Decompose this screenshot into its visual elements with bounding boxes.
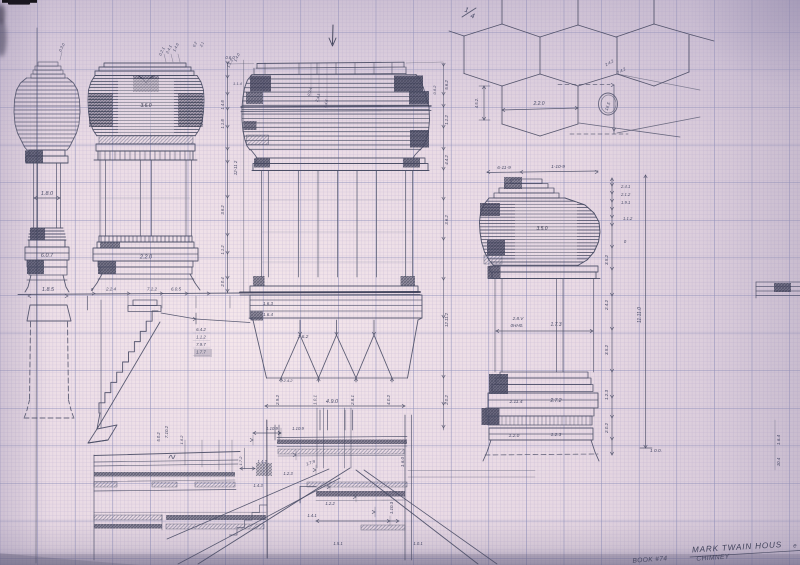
svg-text:5.6.2: 5.6.2 <box>444 80 449 90</box>
svg-text:1.2.2: 1.2.2 <box>325 501 335 506</box>
svg-text:5.0.2: 5.0.2 <box>156 432 161 442</box>
svg-text:1.10.9: 1.10.9 <box>292 426 304 431</box>
svg-text:4.4.2: 4.4.2 <box>444 155 449 165</box>
svg-text:4.9.0: 4.9.0 <box>326 399 339 405</box>
svg-text:1.4.3: 1.4.3 <box>253 483 263 488</box>
svg-text:12.11.2: 12.11.2 <box>444 312 449 327</box>
svg-text:7.2.2: 7.2.2 <box>147 287 158 292</box>
svg-text:1.10.9: 1.10.9 <box>266 426 278 431</box>
svg-text:2.0.4: 2.0.4 <box>220 277 225 288</box>
svg-text:2.8.V: 2.8.V <box>512 316 525 321</box>
svg-text:2.4.2: 2.4.2 <box>283 378 294 383</box>
svg-text:4.5.2.: 4.5.2. <box>474 98 479 108</box>
svg-text:1.2.0: 1.2.0 <box>509 433 520 439</box>
svg-text:1.6.2: 1.6.2 <box>179 435 184 445</box>
svg-text:1.6.4: 1.6.4 <box>263 312 274 317</box>
svg-text:6-11-9: 6-11-9 <box>497 165 511 171</box>
svg-text:0.6.2: 0.6.2 <box>432 85 437 95</box>
svg-text:2.4.1: 2.4.1 <box>620 184 630 189</box>
svg-text:1.5.1: 1.5.1 <box>333 541 342 546</box>
svg-text:7.9.7: 7.9.7 <box>196 342 206 347</box>
svg-text:3.6.2: 3.6.2 <box>444 215 449 225</box>
svg-text:1.1.2: 1.1.2 <box>220 245 225 255</box>
svg-text:6.0.5: 6.0.5 <box>171 287 182 292</box>
svg-text:1.7.2: 1.7.2 <box>238 456 243 466</box>
svg-text:1.0.1: 1.0.1 <box>413 541 422 546</box>
svg-text:6.0.7: 6.0.7 <box>41 253 54 259</box>
svg-text:3.6.0: 3.6.0 <box>140 103 151 109</box>
svg-text:2.2.0: 2.2.0 <box>532 101 544 107</box>
svg-text:1.0.1: 1.0.1 <box>313 395 318 406</box>
svg-text:1.6.0: 1.6.0 <box>400 456 405 467</box>
svg-text:1.6.3: 1.6.3 <box>263 301 274 306</box>
svg-text:2.7.2: 2.7.2 <box>549 398 561 404</box>
svg-text:2.11.4: 2.11.4 <box>509 399 523 405</box>
svg-text:1.1.2: 1.1.2 <box>196 335 206 340</box>
svg-text:1-10-9: 1-10-9 <box>551 164 565 170</box>
svg-text:1.4.1: 1.4.1 <box>307 513 316 518</box>
svg-text:1.1.2: 1.1.2 <box>623 216 633 221</box>
svg-text:10.4: 10.4 <box>776 457 781 466</box>
svg-text:4.0.2: 4.0.2 <box>386 395 391 406</box>
svg-text:1.6.4: 1.6.4 <box>776 434 781 445</box>
svg-text:1.7.3: 1.7.3 <box>550 322 561 328</box>
svg-text:1.8.5: 1.8.5 <box>42 287 55 293</box>
svg-text:11.11.0: 11.11.0 <box>637 307 643 323</box>
svg-text:6.4.2: 6.4.2 <box>196 327 206 332</box>
svg-text:1.4.8: 1.4.8 <box>220 100 225 110</box>
svg-text:1.9.1: 1.9.1 <box>621 200 630 205</box>
svg-text:1.1.8: 1.1.8 <box>220 119 225 129</box>
svg-text:1.2.3: 1.2.3 <box>551 432 562 438</box>
svg-text:2.8.1: 2.8.1 <box>350 395 355 407</box>
svg-text:3.5.0: 3.5.0 <box>536 226 547 232</box>
svg-text:3.5.2: 3.5.2 <box>604 255 609 266</box>
svg-text:2.0.2: 2.0.2 <box>444 395 449 406</box>
svg-text:1 0.0.: 1 0.0. <box>650 448 662 454</box>
svg-text:1.2.3: 1.2.3 <box>604 390 609 401</box>
svg-text:12-11 2: 12-11 2 <box>233 160 238 175</box>
svg-text:1.6.2: 1.6.2 <box>298 334 309 340</box>
svg-text:2.0.2: 2.0.2 <box>604 423 609 435</box>
svg-text:3.5.2: 3.5.2 <box>604 345 609 356</box>
svg-text:1.1.4: 1.1.4 <box>233 81 243 86</box>
svg-text:2.9.2: 2.9.2 <box>275 395 280 407</box>
svg-text:2.2.0: 2.2.0 <box>139 255 153 261</box>
svg-text:1.1.2: 1.1.2 <box>444 115 449 125</box>
svg-text:2.1.2: 2.1.2 <box>620 192 631 197</box>
svg-text:7.10.2: 7.10.2 <box>164 425 169 438</box>
svg-text:2.4.2: 2.4.2 <box>604 300 609 312</box>
svg-text:0HH0.: 0HH0. <box>510 323 523 328</box>
svg-text:1.4.2: 1.4.2 <box>257 459 267 464</box>
svg-text:1.2.3: 1.2.3 <box>283 471 293 476</box>
svg-text:3.6.2: 3.6.2 <box>220 205 225 215</box>
svg-text:1.10.3: 1.10.3 <box>389 501 394 514</box>
svg-text:1.8.0: 1.8.0 <box>41 191 54 197</box>
svg-text:2.2.4: 2.2.4 <box>105 287 117 292</box>
